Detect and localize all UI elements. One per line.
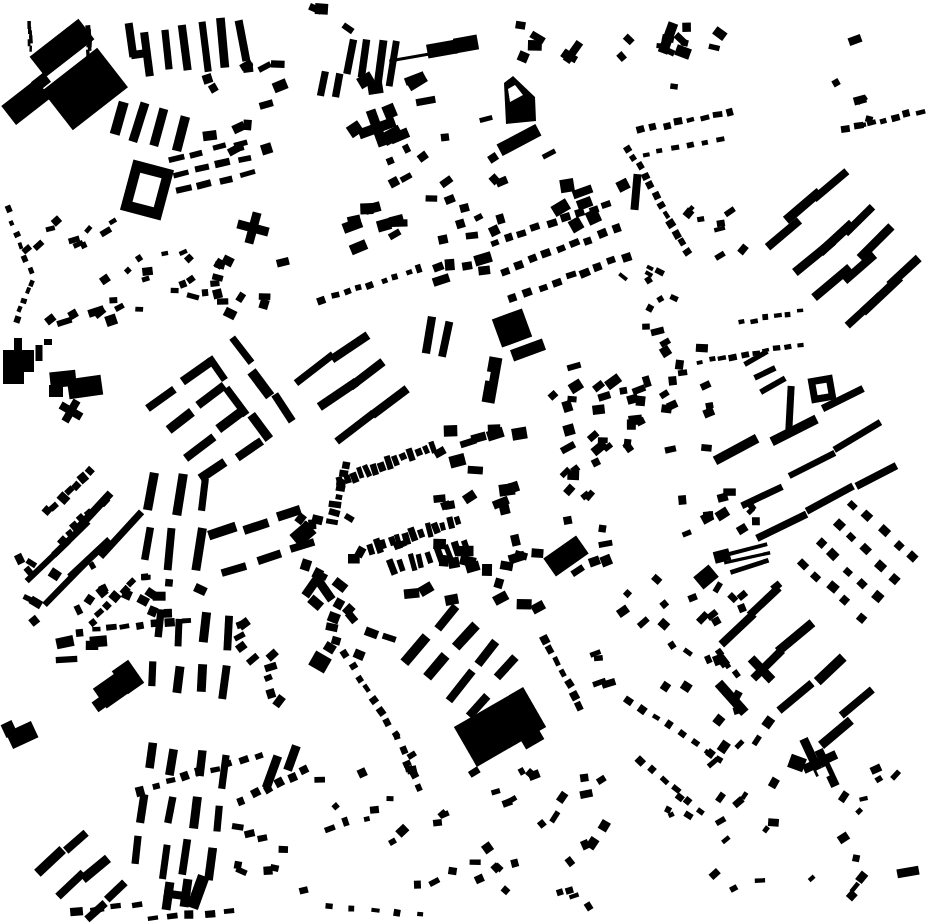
building	[623, 34, 635, 46]
building	[334, 410, 375, 444]
building	[826, 580, 840, 594]
building	[33, 239, 45, 251]
building	[212, 288, 223, 299]
district-s-bottom-dots	[325, 903, 423, 917]
building	[406, 269, 413, 276]
building	[598, 524, 606, 532]
building	[776, 680, 814, 714]
building	[604, 373, 622, 390]
building	[816, 537, 828, 549]
building	[244, 829, 255, 838]
building	[645, 304, 654, 313]
building	[349, 662, 359, 671]
building	[515, 21, 526, 30]
building	[332, 577, 349, 593]
building	[202, 73, 214, 85]
district-c-east-dense	[433, 424, 528, 515]
building	[687, 593, 698, 602]
building	[642, 324, 650, 330]
building-footprint-canvas	[0, 0, 930, 924]
building	[80, 855, 111, 883]
se-lone-bar	[896, 866, 919, 879]
building	[417, 912, 423, 917]
building	[700, 380, 712, 391]
district-s-upper-left	[323, 610, 397, 661]
district-c-comb-upper	[335, 441, 437, 487]
building	[437, 234, 448, 244]
building	[179, 249, 188, 256]
building	[194, 164, 209, 173]
building	[136, 794, 148, 824]
building	[637, 704, 648, 715]
building	[416, 554, 424, 569]
building	[703, 511, 714, 520]
n-block-b	[453, 35, 479, 54]
building	[186, 292, 199, 300]
building	[167, 913, 178, 920]
building	[172, 115, 190, 152]
building	[84, 225, 92, 234]
building	[459, 203, 470, 213]
building	[374, 40, 388, 86]
building	[202, 130, 217, 141]
building	[250, 787, 262, 798]
building	[298, 765, 309, 776]
building	[434, 604, 459, 632]
building	[45, 225, 55, 232]
building	[439, 555, 449, 567]
building	[455, 218, 466, 229]
building	[510, 859, 519, 868]
building	[659, 599, 669, 609]
building	[560, 441, 576, 454]
building	[29, 46, 32, 52]
building	[214, 158, 230, 168]
building	[574, 701, 584, 712]
building	[316, 296, 326, 306]
building	[724, 206, 736, 217]
building	[729, 884, 738, 893]
building	[632, 384, 647, 395]
building	[727, 592, 738, 603]
building	[559, 669, 567, 678]
building	[271, 392, 295, 423]
building	[478, 265, 491, 275]
building	[598, 819, 611, 833]
building	[131, 835, 141, 864]
building	[165, 579, 173, 587]
w-hall-c	[49, 385, 63, 397]
building	[99, 226, 112, 237]
building	[683, 810, 693, 820]
building	[870, 764, 883, 775]
building	[601, 200, 612, 209]
building	[18, 242, 24, 250]
building	[797, 343, 804, 348]
building	[210, 766, 220, 773]
building	[646, 265, 654, 272]
building	[172, 473, 188, 516]
building	[331, 292, 340, 299]
building	[565, 886, 574, 894]
ne-blob	[674, 44, 692, 59]
building	[839, 594, 850, 605]
building	[349, 239, 369, 255]
building	[98, 509, 144, 559]
building	[890, 769, 901, 780]
building	[567, 362, 582, 372]
building	[199, 21, 212, 72]
building	[559, 178, 575, 193]
building	[199, 612, 211, 643]
building	[487, 152, 499, 164]
district-s-bottom-pair	[556, 886, 594, 911]
flag-west-dash	[479, 115, 493, 123]
district-sw-bottom-row	[70, 901, 143, 916]
building	[528, 40, 542, 51]
building	[847, 500, 858, 511]
building	[329, 331, 370, 362]
building	[516, 229, 527, 238]
building	[223, 307, 238, 321]
building	[28, 39, 31, 46]
building	[210, 280, 220, 287]
building	[623, 589, 632, 598]
building	[839, 686, 875, 718]
district-sw-bottom-row-b	[148, 908, 235, 921]
building	[195, 382, 227, 409]
building	[172, 666, 184, 694]
district-s-scatter-c	[510, 769, 611, 868]
building	[671, 144, 680, 150]
building	[716, 219, 725, 227]
district-s-trail-curve-b	[393, 732, 423, 792]
district-nw-arc-a	[21, 215, 117, 285]
s-dark-blob	[308, 651, 332, 674]
building	[654, 267, 665, 276]
building	[721, 835, 731, 844]
building	[598, 437, 608, 443]
building	[339, 649, 349, 659]
building	[432, 273, 451, 286]
building	[440, 133, 449, 141]
building	[240, 169, 256, 178]
building	[490, 239, 499, 247]
building	[493, 577, 504, 589]
building	[682, 529, 692, 537]
building	[205, 910, 216, 918]
building	[164, 528, 176, 571]
building	[597, 228, 609, 239]
building	[357, 767, 368, 778]
building	[129, 102, 150, 143]
building	[915, 109, 925, 116]
building	[233, 631, 245, 641]
building	[341, 22, 354, 34]
building	[621, 252, 632, 263]
building	[651, 574, 662, 585]
building	[808, 875, 816, 883]
building	[474, 874, 485, 885]
building	[652, 713, 661, 721]
building	[641, 172, 651, 181]
building	[377, 461, 387, 472]
building	[219, 176, 233, 185]
building	[166, 777, 176, 784]
building	[846, 532, 857, 543]
building	[178, 839, 191, 876]
building	[686, 141, 694, 148]
building	[728, 354, 737, 362]
building	[106, 624, 117, 631]
building	[623, 145, 632, 154]
building	[740, 484, 783, 509]
building	[792, 238, 836, 276]
building	[417, 151, 429, 163]
building	[235, 291, 246, 303]
building	[300, 558, 313, 571]
building	[783, 188, 823, 224]
building	[784, 312, 790, 318]
building	[371, 908, 380, 913]
building	[25, 287, 31, 294]
building	[232, 823, 244, 831]
building	[178, 279, 187, 288]
building	[149, 108, 168, 147]
building	[691, 738, 701, 747]
building	[439, 522, 446, 531]
building	[734, 739, 744, 749]
building	[468, 766, 481, 778]
building	[259, 99, 274, 109]
e-ring-building-courtyard	[816, 383, 829, 396]
building	[709, 868, 721, 880]
building	[906, 550, 918, 562]
district-ne-terrace-rows	[490, 200, 632, 303]
building	[355, 284, 362, 291]
building	[224, 908, 235, 914]
building	[838, 790, 850, 803]
building	[636, 161, 645, 170]
building	[678, 495, 687, 505]
building	[315, 3, 329, 15]
building	[74, 604, 84, 615]
building	[28, 615, 40, 627]
building	[246, 653, 260, 666]
building	[594, 655, 603, 661]
building	[504, 233, 514, 243]
building	[242, 518, 269, 535]
building	[164, 609, 173, 618]
building	[545, 644, 555, 655]
building	[94, 608, 105, 618]
building	[501, 885, 511, 895]
building	[161, 29, 172, 69]
building	[381, 278, 388, 285]
building	[741, 351, 750, 358]
building	[556, 791, 568, 804]
building	[623, 695, 634, 706]
building	[341, 817, 349, 827]
district-c-slab-n	[422, 316, 453, 358]
building	[417, 581, 434, 597]
building	[670, 83, 678, 89]
building	[518, 767, 526, 776]
district-se-near-h	[838, 764, 901, 816]
building	[108, 590, 121, 603]
building	[701, 140, 708, 146]
building	[148, 661, 156, 686]
building	[404, 588, 420, 599]
building	[732, 669, 741, 678]
building	[473, 251, 493, 266]
building	[145, 742, 157, 769]
building	[272, 78, 289, 93]
building	[517, 599, 532, 610]
building	[482, 564, 492, 576]
building	[370, 806, 380, 814]
building	[643, 152, 650, 157]
building	[457, 546, 474, 556]
building	[878, 524, 891, 537]
building	[459, 437, 477, 448]
building	[713, 581, 723, 593]
building	[707, 757, 720, 769]
building	[810, 571, 821, 582]
building	[784, 344, 792, 350]
district-n-top-edge-blob	[308, 3, 354, 34]
building	[612, 223, 622, 234]
building	[592, 380, 605, 393]
building	[182, 618, 191, 623]
building	[606, 256, 616, 265]
district-nw-slab-row	[140, 18, 250, 77]
district-se-sparse-bottom	[709, 818, 869, 901]
building	[386, 40, 400, 86]
building	[527, 253, 537, 263]
building	[342, 461, 351, 469]
building	[388, 838, 397, 846]
building	[648, 123, 656, 131]
building	[216, 18, 229, 68]
building	[568, 378, 585, 394]
building	[859, 543, 872, 556]
building	[750, 318, 758, 324]
building	[382, 633, 397, 643]
building	[278, 846, 288, 853]
building	[718, 611, 756, 648]
building	[788, 450, 837, 479]
building	[481, 841, 494, 854]
building	[326, 518, 338, 525]
building	[238, 755, 249, 764]
building	[173, 169, 189, 178]
building	[287, 772, 298, 783]
building	[415, 783, 423, 792]
building	[314, 777, 325, 783]
building	[737, 243, 749, 255]
building	[197, 664, 207, 692]
figure-ground-map	[0, 0, 930, 924]
building	[663, 122, 672, 130]
building	[712, 26, 728, 41]
building	[529, 222, 540, 231]
building	[235, 641, 248, 653]
building	[212, 142, 226, 151]
building	[439, 175, 453, 188]
building	[70, 907, 83, 916]
building	[104, 313, 118, 327]
building	[428, 877, 440, 887]
building	[770, 415, 819, 446]
building	[276, 257, 290, 268]
building	[656, 201, 666, 210]
building	[325, 903, 333, 909]
district-e-dense-band	[619, 324, 715, 454]
district-ne-scatter-mid	[682, 205, 748, 261]
building	[152, 783, 160, 790]
building	[773, 345, 781, 351]
building	[388, 229, 402, 241]
building	[853, 94, 867, 105]
building	[193, 583, 208, 596]
building	[762, 314, 768, 320]
building	[391, 273, 398, 280]
building	[184, 253, 194, 263]
building	[424, 551, 433, 564]
building	[833, 518, 846, 531]
building	[677, 237, 686, 246]
building	[204, 847, 217, 881]
building	[386, 796, 393, 801]
building	[671, 784, 682, 794]
building	[348, 906, 354, 912]
building	[141, 275, 150, 282]
building	[833, 419, 883, 452]
building	[218, 665, 230, 700]
building	[370, 385, 410, 418]
building	[416, 96, 436, 106]
building	[768, 818, 779, 826]
building	[218, 754, 230, 789]
building	[845, 293, 883, 329]
building	[465, 232, 478, 240]
building	[530, 600, 546, 615]
building	[405, 447, 415, 461]
district-left-edge-dots-b	[13, 280, 34, 324]
district-nw-slab-row-b	[110, 101, 190, 152]
building	[44, 313, 57, 325]
building	[564, 678, 575, 689]
building	[644, 276, 653, 285]
building	[108, 218, 117, 226]
district-ne-dots-sparse	[618, 265, 679, 313]
building	[317, 71, 329, 97]
building	[774, 313, 782, 318]
district-sw-block-pair	[55, 635, 107, 663]
building	[333, 597, 346, 610]
building	[243, 119, 252, 130]
building	[109, 297, 117, 303]
building	[616, 604, 630, 617]
district-s-east-pair	[589, 649, 616, 689]
building	[902, 109, 911, 118]
building	[888, 573, 900, 585]
building	[179, 771, 190, 782]
building	[343, 39, 357, 75]
building	[645, 180, 655, 190]
district-s-scatter-b	[388, 809, 510, 895]
